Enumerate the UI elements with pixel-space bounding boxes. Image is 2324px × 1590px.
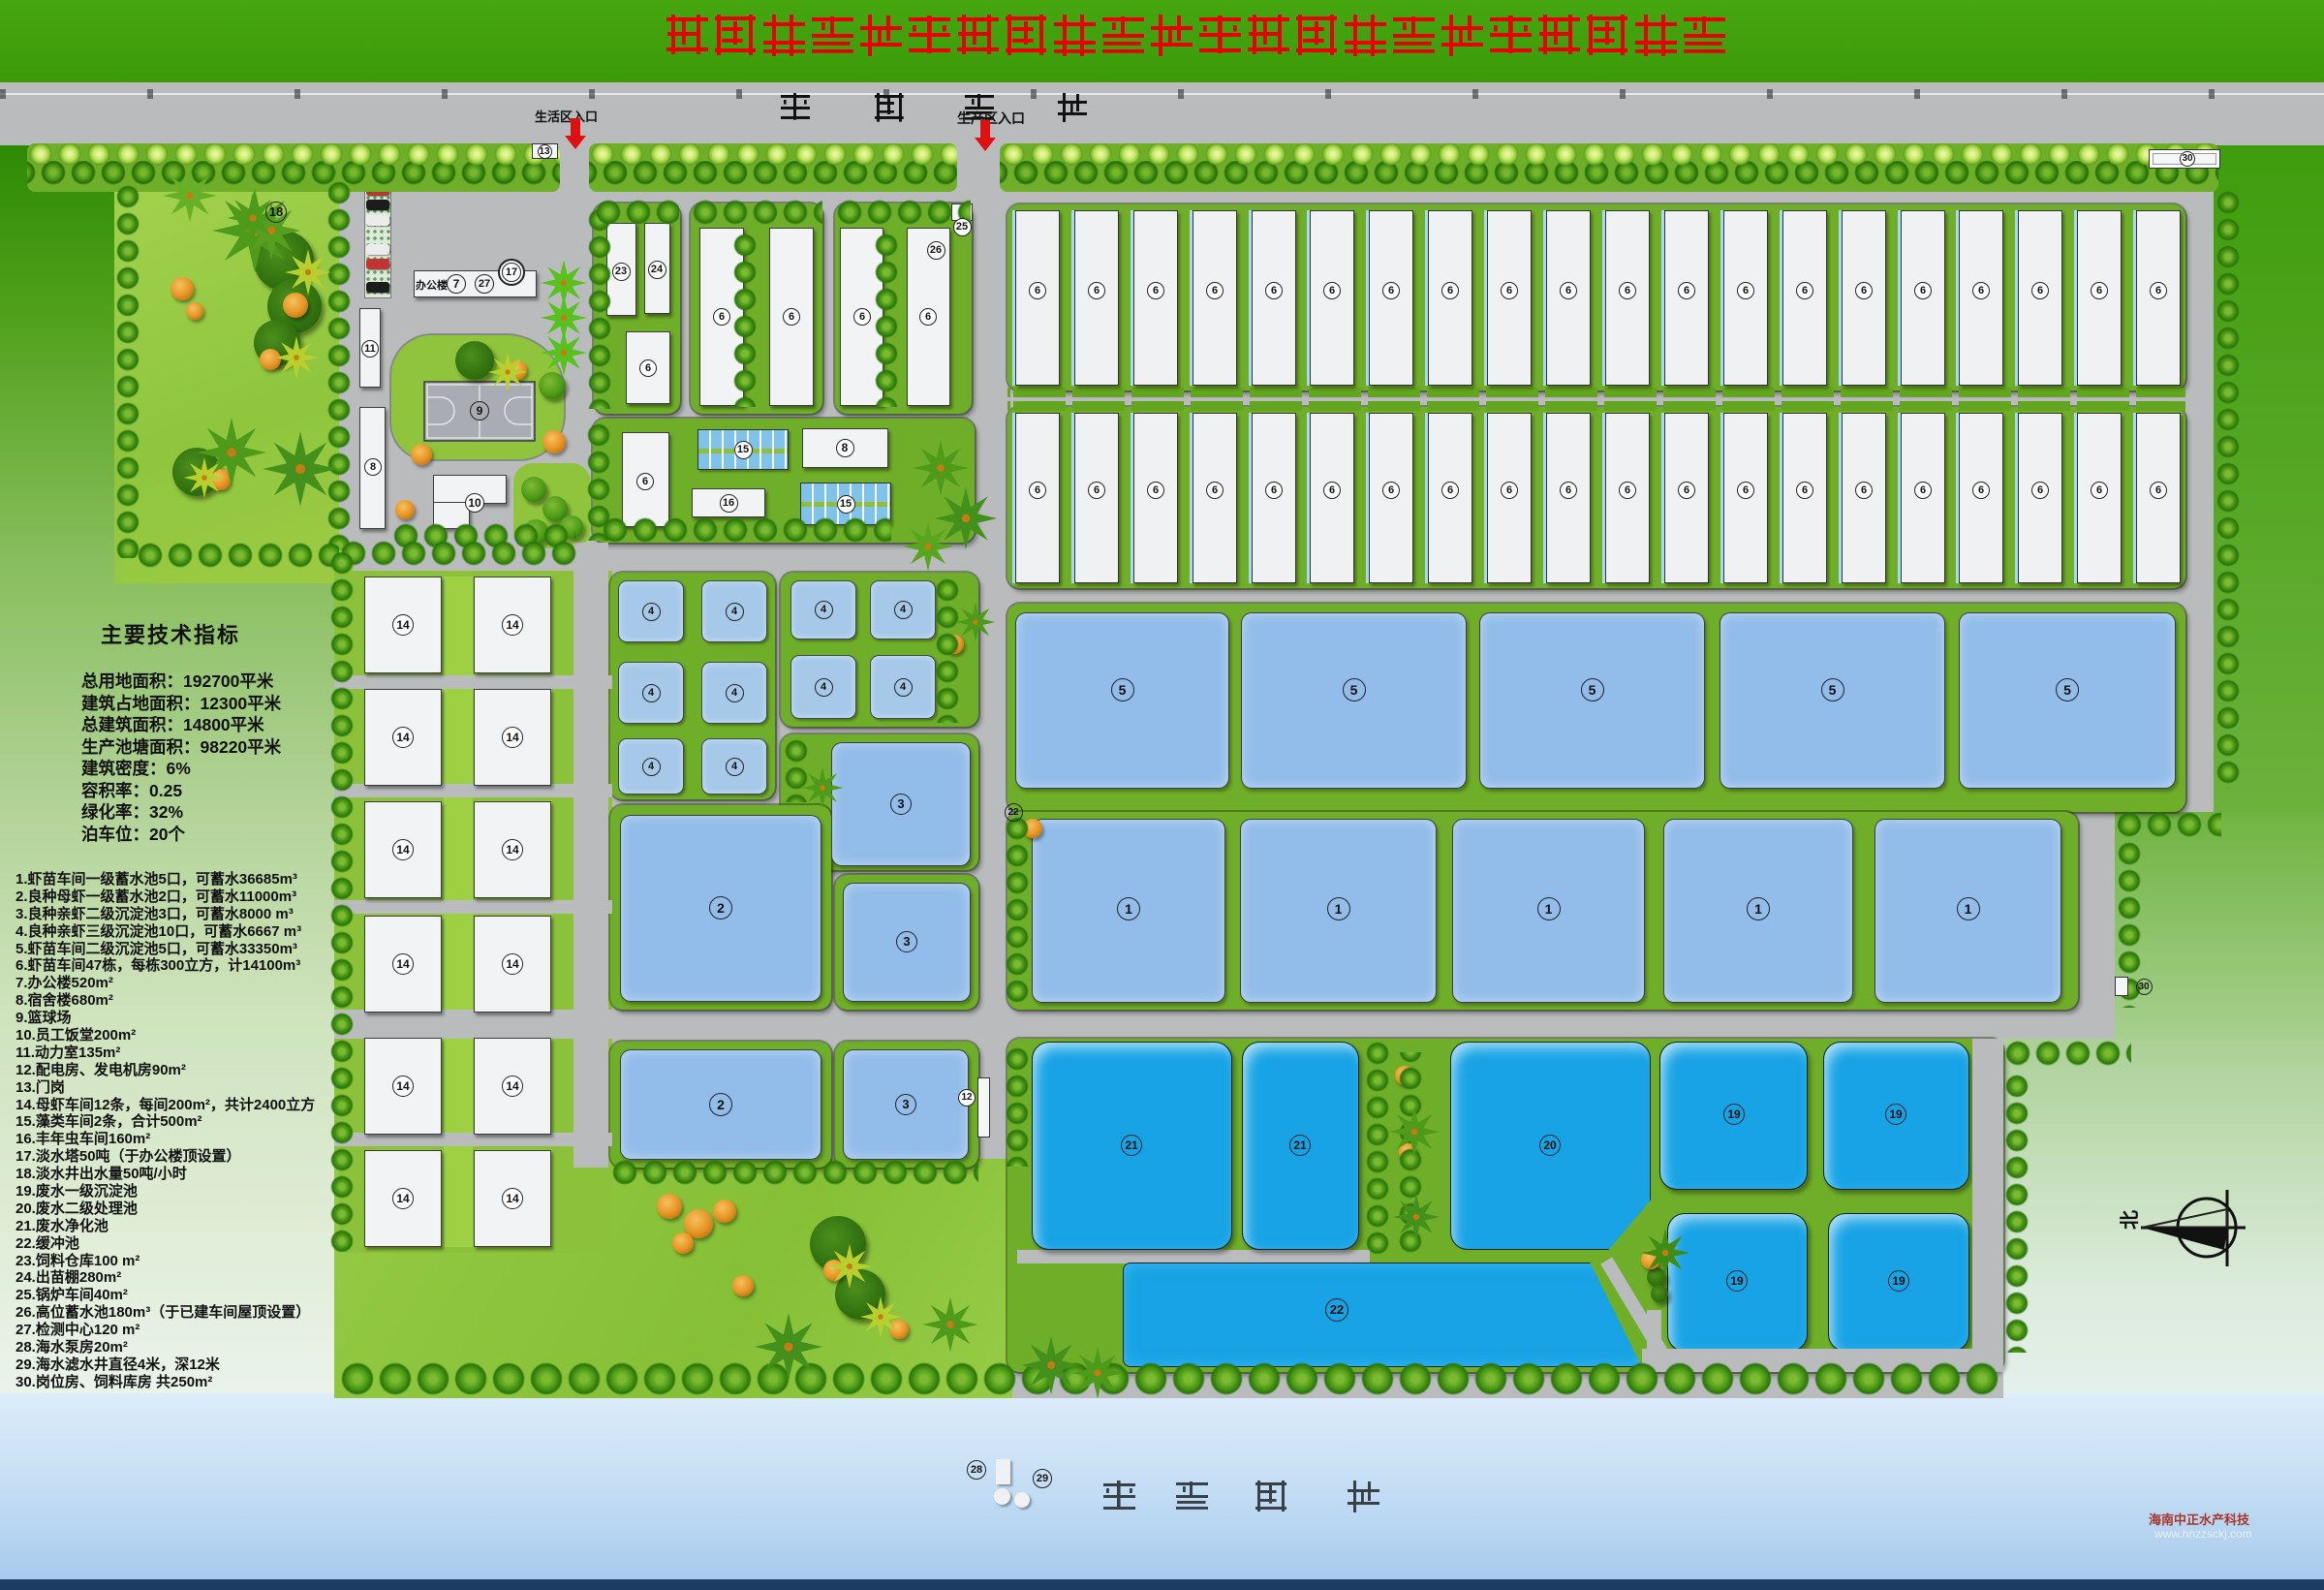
svg-text:北: 北 (2119, 1210, 2141, 1230)
